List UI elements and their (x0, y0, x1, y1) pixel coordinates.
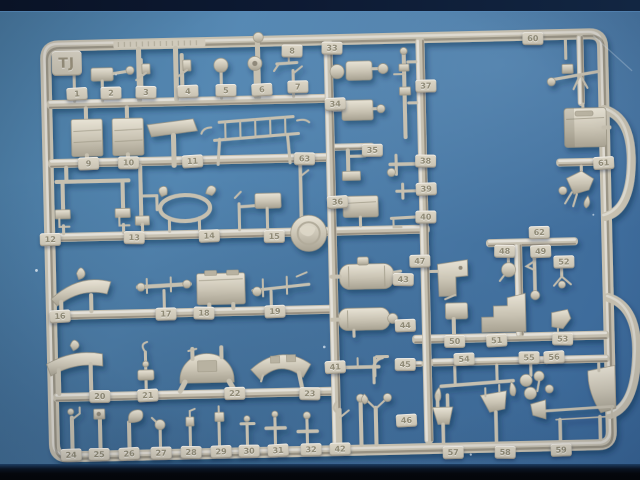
part-tag-32: 32 (300, 443, 321, 456)
part-tag-5: 5 (215, 84, 236, 97)
part-tag-10: 10 (118, 156, 139, 169)
part-tag-25: 25 (89, 448, 110, 461)
part-tag-55: 55 (519, 351, 540, 364)
part-tag-40: 40 (415, 211, 436, 224)
photo-top-band (0, 0, 640, 11)
part-tag-58: 58 (495, 446, 516, 459)
part-tag-8: 8 (281, 44, 302, 57)
part-tag-12: 12 (40, 233, 61, 246)
part-tag-27: 27 (151, 446, 172, 459)
part-tag-54: 54 (453, 352, 475, 366)
part-tag-49: 49 (530, 245, 552, 259)
part-tag-44: 44 (395, 319, 417, 333)
part-tag-48: 48 (494, 245, 515, 258)
part-tag-22: 22 (224, 387, 245, 400)
part-tag-3: 3 (135, 86, 156, 99)
sprue-graphic (0, 0, 640, 480)
part-tag-46: 46 (396, 413, 418, 427)
part-tag-14: 14 (198, 229, 220, 243)
plastic-sprue: TJ 1234567891011121314151617181920212223… (0, 0, 640, 480)
part-tag-61: 61 (593, 156, 615, 170)
part-tag-50: 50 (444, 335, 465, 348)
photo-bottom-band (0, 464, 640, 480)
part-tag-56: 56 (543, 350, 565, 364)
part-tag-31: 31 (267, 443, 289, 457)
part-tag-26: 26 (118, 447, 140, 461)
part-tag-45: 45 (395, 358, 416, 371)
part-tag-21: 21 (137, 388, 159, 402)
sprue-photo: TJ 1234567891011121314151617181920212223… (0, 0, 640, 480)
part-tag-51: 51 (486, 333, 508, 347)
part-tag-30: 30 (239, 445, 260, 458)
part-tag-16: 16 (49, 309, 71, 323)
part-tag-43: 43 (393, 273, 414, 286)
part-tag-19: 19 (264, 305, 286, 319)
part-tag-34: 34 (325, 97, 347, 111)
part-tag-2: 2 (100, 86, 121, 99)
part-tag-1: 1 (66, 87, 88, 101)
part-tag-63: 63 (294, 152, 315, 165)
part-tag-42: 42 (329, 442, 350, 455)
part-tag-11: 11 (182, 154, 204, 168)
part-tag-59: 59 (550, 443, 572, 457)
part-tag-57: 57 (443, 446, 464, 459)
part-tag-52: 52 (553, 255, 574, 268)
part-tag-39: 39 (415, 182, 437, 196)
part-tag-18: 18 (193, 307, 214, 320)
part-tag-13: 13 (124, 231, 145, 244)
sprue-letter-tag: TJ (52, 50, 83, 76)
part-tag-4: 4 (177, 85, 199, 99)
part-tag-24: 24 (60, 448, 82, 462)
part-tag-41: 41 (324, 360, 346, 374)
part-tag-23: 23 (299, 387, 320, 400)
part-tag-28: 28 (181, 446, 202, 459)
part-tag-33: 33 (321, 42, 342, 55)
part-tag-9: 9 (78, 157, 100, 171)
part-tag-29: 29 (210, 445, 232, 459)
part-tag-17: 17 (155, 307, 176, 320)
part-tag-62: 62 (529, 226, 550, 239)
part-tag-60: 60 (522, 32, 543, 45)
part-tag-6: 6 (251, 83, 273, 97)
part-tag-7: 7 (287, 80, 308, 93)
part-tag-20: 20 (89, 390, 110, 403)
part-tag-47: 47 (409, 255, 430, 268)
part-tag-38: 38 (415, 154, 436, 167)
part-tag-37: 37 (415, 79, 436, 92)
part-tag-53: 53 (552, 332, 573, 345)
part-tag-35: 35 (362, 144, 383, 157)
part-tag-36: 36 (327, 195, 349, 209)
part-tag-15: 15 (264, 230, 285, 243)
